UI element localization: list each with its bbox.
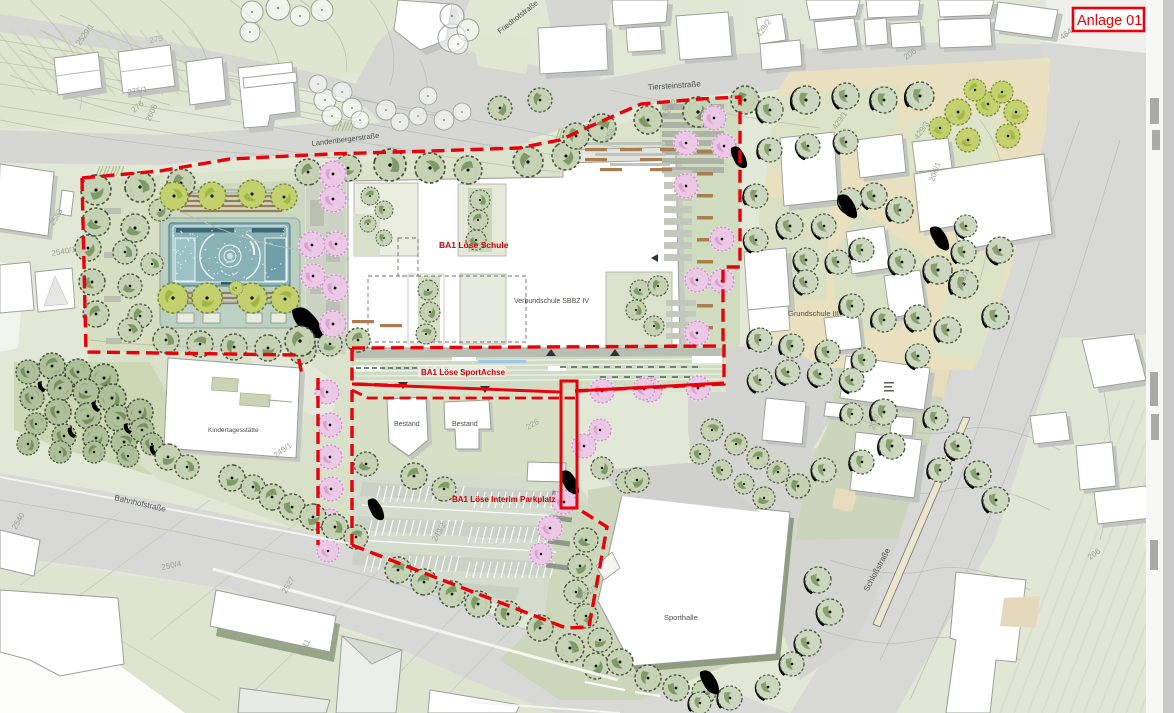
- svg-text:BA1 Löse Interim Parkplatz: BA1 Löse Interim Parkplatz: [452, 495, 556, 504]
- svg-text:Verbundschule SBBZ IV: Verbundschule SBBZ IV: [514, 298, 589, 305]
- svg-text:Anlage 01: Anlage 01: [1077, 13, 1142, 29]
- svg-text:BA1 Löse Schule: BA1 Löse Schule: [439, 240, 509, 250]
- svg-text:Bestand: Bestand: [394, 421, 420, 428]
- svg-text:BA1 Löse SportAchse: BA1 Löse SportAchse: [421, 368, 506, 377]
- svg-text:Bestand: Bestand: [452, 421, 478, 428]
- svg-text:Grundschule III: Grundschule III: [788, 309, 839, 318]
- svg-text:Kindertagesstätte: Kindertagesstätte: [208, 427, 259, 434]
- svg-text:Sporthalle: Sporthalle: [664, 613, 698, 622]
